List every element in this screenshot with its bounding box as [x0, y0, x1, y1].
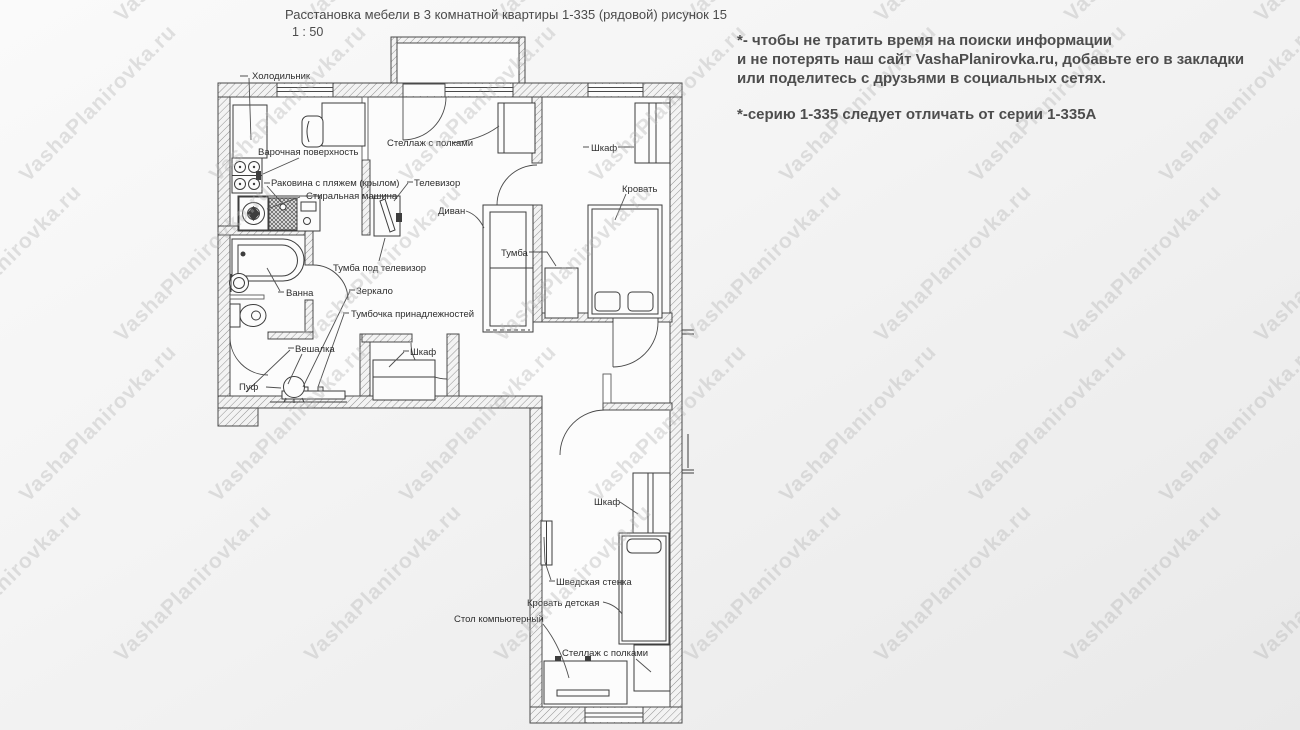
- label-bed: Кровать: [622, 184, 657, 195]
- cooktop: [232, 158, 262, 193]
- nightstand: [545, 268, 578, 318]
- notes-block: *- чтобы не тратить время на поиски инфо…: [737, 31, 1297, 124]
- label-bath: Ванна: [286, 288, 314, 299]
- label-tv-stand: Тумба под телевизор: [333, 263, 426, 274]
- page: Расстановка мебели в 3 комнатной квартир…: [0, 0, 1300, 730]
- label-shelving-living: Стеллаж с полками: [387, 138, 473, 149]
- balcony-door-opening: [403, 83, 445, 97]
- label-wall-bars: Шведская стенка: [556, 577, 632, 588]
- label-tv: Телевизор: [414, 178, 460, 189]
- note-line: *- чтобы не тратить время на поиски инфо…: [737, 31, 1297, 50]
- drawing-scale: 1 : 50: [292, 25, 323, 39]
- double-bed: [588, 205, 662, 318]
- window-bedroom: [588, 83, 643, 97]
- label-pouf: Пуф: [239, 382, 258, 393]
- living-shelving: [498, 103, 535, 153]
- kids-wardrobe: [633, 473, 670, 534]
- hall-wardrobe: [373, 360, 435, 400]
- label-computer-desk: Стол компьютерный: [454, 614, 544, 625]
- label-sink: Раковина с пляжем (крылом): [271, 178, 399, 189]
- computer-desk: [544, 656, 627, 704]
- toilet: [230, 304, 266, 327]
- kids-bed: [619, 533, 669, 644]
- label-shelving-kids: Стеллаж с полками: [562, 648, 648, 659]
- sofa: [483, 205, 533, 332]
- wall-bars: [541, 521, 552, 565]
- label-accessory-stand: Тумбочка принадлежностей: [351, 309, 474, 320]
- note-line: или поделитесь с друзьями в социальных с…: [737, 69, 1297, 88]
- label-sofa: Диван: [438, 206, 465, 217]
- label-nightstand: Тумба: [501, 248, 529, 259]
- bedroom-wardrobe: [635, 103, 670, 163]
- label-coat-rack: Вешалка: [295, 344, 335, 355]
- label-mirror: Зеркало: [356, 286, 393, 297]
- corner-sink: [230, 274, 249, 293]
- label-washer: Стиральная машина: [306, 191, 398, 202]
- note-line: и не потерять наш сайт VashaPlanirovka.r…: [737, 50, 1297, 69]
- label-cooktop: Варочная поверхность: [258, 147, 358, 158]
- label-wardrobe-hall: Шкаф: [410, 347, 436, 358]
- label-wardrobe-bedroom: Шкаф: [591, 143, 617, 154]
- kitchen-table: [322, 103, 365, 146]
- drawing-title: Расстановка мебели в 3 комнатной квартир…: [285, 7, 727, 22]
- tv-stand-unit: [374, 196, 402, 236]
- label-wardrobe-kids: Шкаф: [594, 497, 620, 508]
- window-living: [445, 83, 513, 97]
- window-kids: [585, 707, 643, 723]
- kitchen-chair: [302, 116, 323, 147]
- label-fridge: Холодильник: [252, 71, 311, 82]
- note-line: *-серию 1-335 следует отличать от серии …: [737, 105, 1297, 124]
- label-bed-kids: Кровать детская: [527, 598, 599, 609]
- window-kitchen: [277, 83, 333, 97]
